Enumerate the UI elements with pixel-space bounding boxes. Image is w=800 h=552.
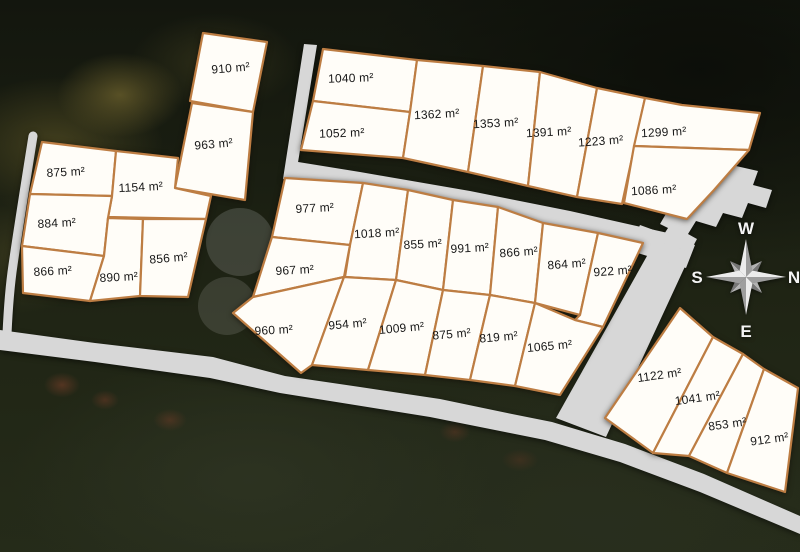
- compass-label-east: E: [740, 322, 751, 341]
- plot-map-svg: 910 m² 963 m² 875 m² 1154 m² 884 m² 866 …: [0, 0, 800, 552]
- plot-area-label: 922 m²: [593, 263, 632, 280]
- plot-area-label: 1086 m²: [631, 182, 677, 198]
- plot-area-label: 991 m²: [450, 240, 489, 256]
- plot-area-label: 1154 m²: [118, 179, 163, 195]
- plot-area-label: 1040 m²: [328, 70, 374, 86]
- compass-label-west: W: [738, 219, 755, 238]
- plot-1299[interactable]: [634, 98, 760, 150]
- plot-area-label: 890 m²: [99, 269, 138, 285]
- compass-label-north: N: [788, 268, 800, 287]
- plot-area-label: 884 m²: [37, 215, 76, 231]
- plot-area-label: 967 m²: [275, 262, 314, 278]
- plot-area-label: 960 m²: [254, 322, 293, 338]
- plot-area-label: 977 m²: [295, 200, 334, 216]
- plot-area-label: 855 m²: [403, 236, 442, 252]
- plot-area-label: 866 m²: [33, 263, 72, 279]
- plot-area-label: 875 m²: [46, 164, 85, 180]
- plot-area-label: 1353 m²: [473, 115, 519, 131]
- compass-rose: W S N E: [691, 219, 800, 341]
- plot-area-label: 864 m²: [547, 256, 586, 273]
- plot-area-label: 866 m²: [499, 244, 538, 261]
- compass-label-south: S: [691, 268, 702, 287]
- plot-area-label: 1362 m²: [414, 106, 460, 122]
- plot-area-label: 1391 m²: [526, 124, 572, 140]
- plot-area-label: 1018 m²: [354, 225, 400, 241]
- plot-963[interactable]: [175, 103, 253, 200]
- land-plot-map: 910 m² 963 m² 875 m² 1154 m² 884 m² 866 …: [0, 0, 800, 552]
- plot-area-label: 1299 m²: [641, 124, 687, 140]
- compass-star-icon: [706, 239, 786, 315]
- plot-area-label: 1052 m²: [319, 125, 365, 141]
